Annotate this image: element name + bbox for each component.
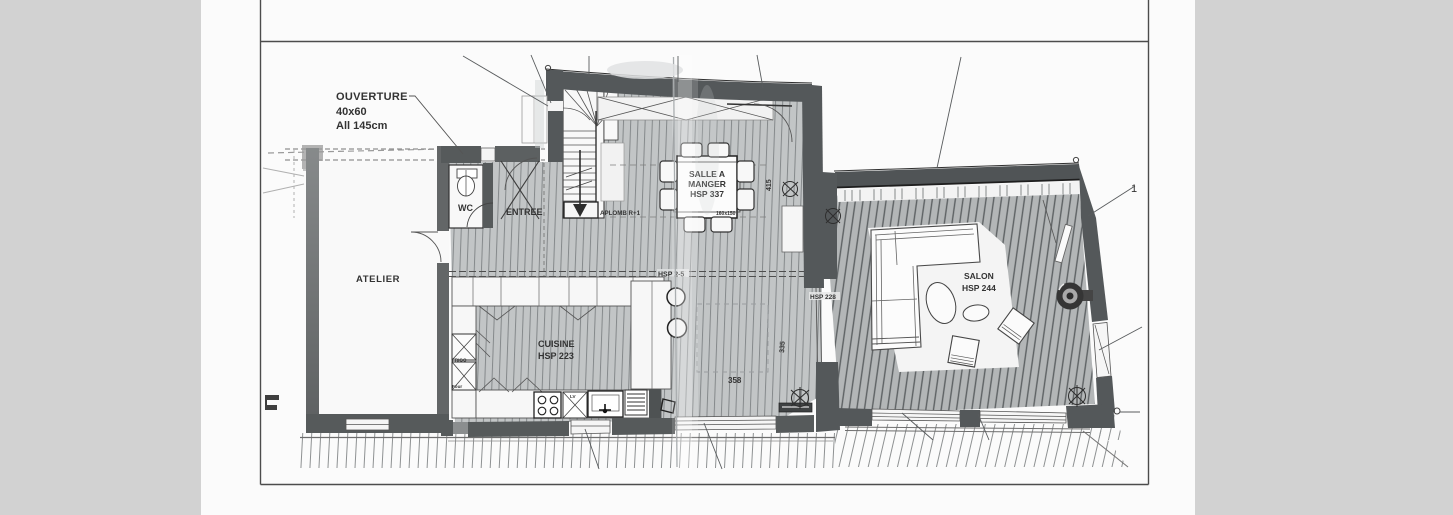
svg-text:335: 335 [779,341,787,353]
svg-text:All 145cm: All 145cm [336,120,388,132]
svg-text:HSP 223: HSP 223 [538,351,574,361]
svg-text:LV: LV [570,394,576,399]
svg-text:ENTREE: ENTREE [506,207,543,217]
svg-text:WC: WC [458,203,473,213]
svg-text:160x150: 160x150 [716,211,736,217]
svg-text:1: 1 [1131,183,1137,195]
svg-text:APLOMB R+1: APLOMB R+1 [600,210,641,217]
svg-text:40x60: 40x60 [336,106,367,118]
svg-text:ATELIER: ATELIER [356,274,400,285]
svg-text:358: 358 [728,376,742,385]
svg-text:OUVERTURE: OUVERTURE [336,91,408,103]
svg-text:415: 415 [766,179,773,191]
svg-text:Four: Four [452,384,462,389]
svg-text:SALON: SALON [964,271,994,281]
svg-text:HSP 228: HSP 228 [810,294,836,301]
svg-text:HSP 244: HSP 244 [962,283,996,293]
svg-text:CUISINE: CUISINE [538,339,575,349]
